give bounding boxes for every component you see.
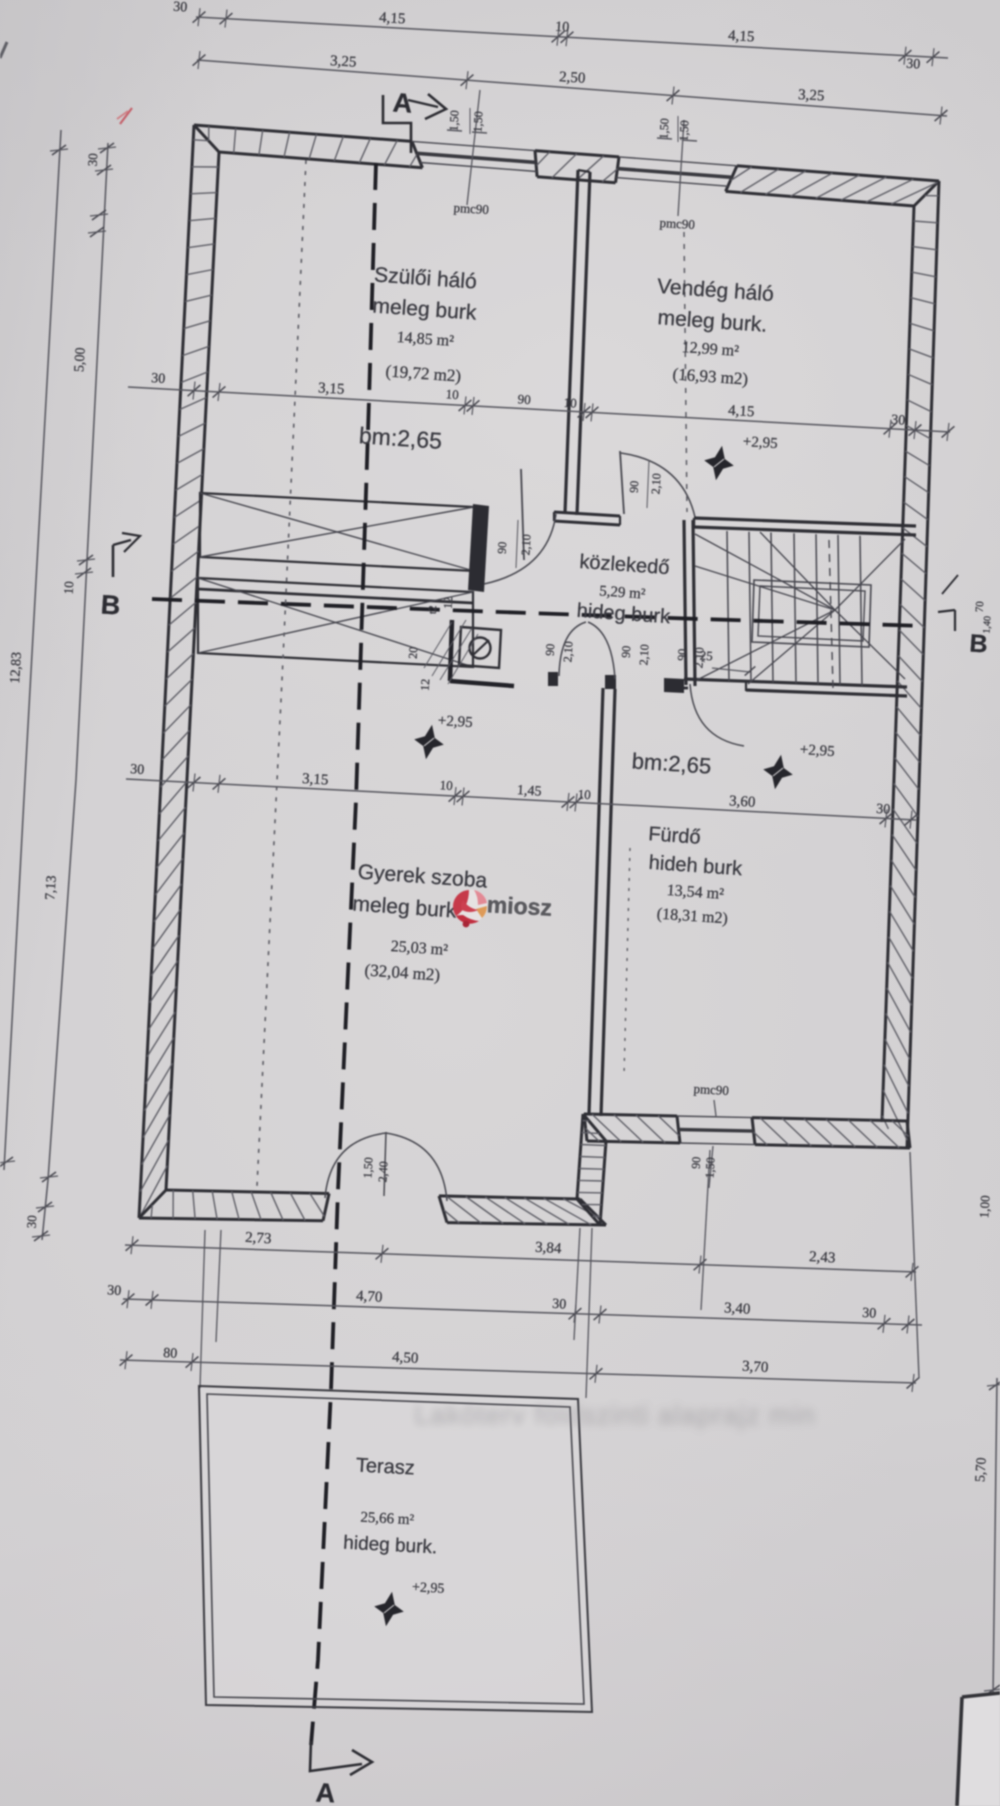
svg-text:90: 90 [627, 480, 642, 493]
svg-text:7,13: 7,13 [43, 875, 59, 900]
svg-text:30: 30 [552, 1297, 567, 1313]
svg-text:1,50: 1,50 [702, 1157, 717, 1179]
svg-text:30: 30 [173, 0, 188, 16]
svg-text:30: 30 [107, 1283, 122, 1299]
svg-text:5,00: 5,00 [72, 347, 88, 372]
svg-text:12,99 m²: 12,99 m² [681, 339, 739, 360]
svg-text:10: 10 [61, 581, 77, 595]
svg-text:5,29 m²: 5,29 m² [599, 583, 647, 602]
svg-text:közlekedő: közlekedő [579, 551, 670, 579]
svg-text:2,10: 2,10 [648, 473, 663, 495]
svg-text:t2: t2 [427, 605, 440, 614]
svg-text:Gyerek szoba: Gyerek szoba [357, 861, 488, 893]
svg-text:Vendég háló: Vendég háló [656, 275, 774, 306]
svg-text:+2,95: +2,95 [437, 713, 473, 731]
svg-text:Fürdő: Fürdő [648, 823, 702, 849]
svg-text:25,66 m²: 25,66 m² [360, 1510, 415, 1529]
svg-text:3,84: 3,84 [535, 1240, 563, 1258]
svg-text:2,50: 2,50 [559, 69, 586, 87]
svg-text:hideh burk: hideh burk [648, 852, 744, 881]
svg-text:meleg burk: meleg burk [372, 294, 478, 324]
svg-text:3,25: 3,25 [798, 87, 825, 105]
svg-text:80: 80 [163, 1346, 178, 1362]
svg-text:Lakóterv földszinti alaprajz m: Lakóterv földszinti alaprajz min [414, 1400, 815, 1430]
svg-text:Terasz: Terasz [355, 1454, 415, 1479]
svg-text:30: 30 [85, 153, 101, 167]
svg-text:90: 90 [675, 648, 690, 661]
svg-text:pmc90: pmc90 [693, 1081, 729, 1098]
svg-text:1,50: 1,50 [656, 118, 671, 140]
svg-text:A: A [392, 87, 414, 118]
svg-text:30: 30 [862, 1306, 877, 1322]
svg-text:4,70: 4,70 [356, 1288, 383, 1306]
svg-text:bm:2,65: bm:2,65 [631, 748, 712, 778]
svg-text:90: 90 [517, 391, 531, 407]
svg-text:2,10: 2,10 [636, 644, 651, 666]
svg-text:4,50: 4,50 [392, 1349, 419, 1367]
svg-text:12: 12 [418, 678, 433, 691]
svg-text:10: 10 [439, 777, 453, 793]
svg-text:30: 30 [130, 762, 145, 778]
svg-text:12,83: 12,83 [8, 652, 25, 684]
svg-text:2,40: 2,40 [375, 1161, 390, 1183]
svg-text:A: A [315, 1778, 336, 1806]
svg-text:25,03 m²: 25,03 m² [390, 938, 448, 959]
svg-text:20: 20 [406, 646, 421, 659]
svg-text:pmc90: pmc90 [453, 200, 489, 217]
svg-text:+2,95: +2,95 [742, 434, 778, 452]
svg-text:B: B [100, 589, 122, 620]
svg-text:30: 30 [891, 413, 906, 429]
svg-text:(32,04 m2): (32,04 m2) [364, 960, 441, 984]
svg-text:1,50: 1,50 [446, 110, 461, 132]
svg-text:12: 12 [441, 596, 456, 609]
svg-text:2,10: 2,10 [560, 641, 575, 663]
svg-text:3,60: 3,60 [729, 793, 756, 811]
svg-text:2,10: 2,10 [518, 534, 533, 556]
svg-text:10: 10 [555, 20, 570, 36]
svg-text:1,00: 1,00 [976, 1195, 992, 1219]
svg-text:2,43: 2,43 [809, 1249, 836, 1267]
svg-text:1,50: 1,50 [360, 1157, 375, 1179]
svg-text:30: 30 [906, 57, 921, 73]
svg-text:3,40: 3,40 [724, 1300, 751, 1318]
svg-text:30: 30 [24, 1215, 40, 1229]
svg-text:30: 30 [876, 802, 891, 818]
svg-text:Szülői háló: Szülői háló [373, 263, 477, 293]
svg-text:4,15: 4,15 [379, 10, 406, 28]
svg-text:10: 10 [563, 395, 577, 411]
svg-text:hideg burk: hideg burk [576, 600, 672, 629]
svg-text:70: 70 [974, 600, 987, 612]
svg-text:10: 10 [577, 786, 591, 802]
svg-text:2,10: 2,10 [691, 647, 706, 669]
svg-text:miosz: miosz [486, 891, 552, 920]
svg-text:10: 10 [445, 386, 459, 402]
svg-text:+2,95: +2,95 [412, 1580, 445, 1597]
svg-text:(19,72 m2): (19,72 m2) [385, 361, 462, 385]
svg-text:1,50: 1,50 [470, 111, 485, 133]
svg-text:14,85 m²: 14,85 m² [396, 329, 454, 350]
svg-text:pmc90: pmc90 [659, 215, 695, 232]
svg-text:3,15: 3,15 [318, 380, 345, 398]
svg-text:meleg burk.: meleg burk. [657, 306, 768, 337]
svg-text:bm:2,65: bm:2,65 [358, 422, 443, 454]
svg-text:(18,31 m2): (18,31 m2) [656, 906, 728, 928]
svg-text:5,70: 5,70 [973, 1457, 989, 1482]
svg-text:30: 30 [151, 371, 166, 387]
svg-text:4,15: 4,15 [728, 28, 755, 46]
svg-text:1,45: 1,45 [517, 783, 542, 799]
svg-text:1,40: 1,40 [981, 616, 993, 634]
svg-text:3,70: 3,70 [742, 1359, 769, 1377]
svg-text:90: 90 [689, 1156, 704, 1169]
svg-text:90: 90 [619, 645, 634, 658]
svg-text:3,15: 3,15 [302, 771, 329, 789]
svg-text:+2,95: +2,95 [799, 742, 835, 760]
svg-text:4,15: 4,15 [728, 403, 755, 421]
svg-text:13,54 m²: 13,54 m² [666, 882, 724, 903]
svg-text:(16,93 m2): (16,93 m2) [672, 364, 749, 388]
svg-text:2,73: 2,73 [245, 1230, 272, 1248]
svg-text:1,50: 1,50 [676, 120, 691, 142]
svg-text:meleg burk: meleg burk [352, 892, 458, 922]
svg-text:3,25: 3,25 [330, 53, 357, 71]
svg-text:90: 90 [495, 541, 510, 554]
svg-text:90: 90 [543, 643, 558, 656]
